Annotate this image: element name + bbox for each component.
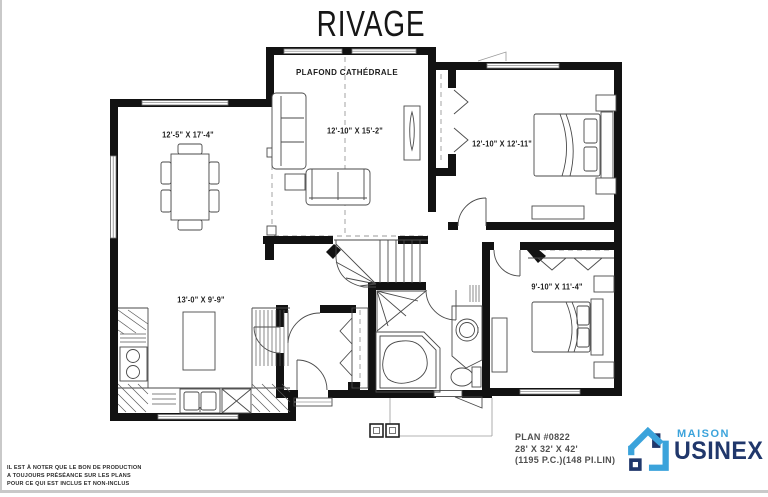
sofa-icon (272, 93, 306, 169)
bed-icon (534, 112, 613, 178)
side-table-icon (285, 174, 305, 190)
bathroom-fittings (376, 285, 482, 392)
bifold-door-icon (340, 350, 352, 376)
loveseat-icon (306, 169, 370, 205)
plan-dimensions: 28' X 32' X 42' (515, 444, 615, 456)
bifold-door-icon (538, 258, 566, 270)
room-label-bedroom-2: 9'-10" X 11'-4" (531, 283, 582, 292)
dishwasher-icon (222, 389, 251, 413)
plan-area: (1195 P.C.)(148 PI.LIN) (515, 455, 615, 467)
entry-door-leaf (455, 397, 482, 408)
bedroom2-furniture (492, 258, 614, 378)
room-label-living: 12'-10" X 15'-2" (327, 127, 383, 136)
nightstand-icon (596, 95, 616, 111)
living-furniture (272, 93, 420, 205)
toilet-icon (451, 367, 481, 387)
kitchen-island (183, 312, 215, 370)
porch-post-icon (370, 424, 383, 437)
disclaimer-line: IL EST À NOTER QUE LE BON DE PRODUCTION (7, 464, 142, 472)
disclaimer-line: POUR CE QUI EST INCLUS ET NON-INCLUS (7, 480, 142, 488)
fireplace-icon (404, 106, 420, 160)
stairs (334, 240, 428, 287)
plan-info: PLAN #0822 28' X 32' X 42' (1195 P.C.)(1… (515, 432, 615, 467)
logo-word-usinex: USINEX (674, 437, 763, 466)
dresser-icon (492, 318, 507, 372)
room-label-kitchen: 13'-0" X 9'-9" (177, 296, 224, 305)
disclaimer-line: A TOUJOURS PRÉSÉANCE SUR LES PLANS (7, 472, 142, 480)
room-label-bedroom-1: 12'-10" X 12'-11" (472, 140, 532, 149)
plan-number: PLAN #0822 (515, 432, 615, 444)
bedroom1-furniture (454, 90, 616, 219)
corner-shower-icon (377, 291, 426, 331)
logo-house-icon (627, 426, 673, 474)
disclaimer-note: IL EST À NOTER QUE LE BON DE PRODUCTION … (7, 464, 142, 488)
kitchen-sink-icon (180, 389, 220, 413)
maison-usinex-logo: MAISON USINEX (627, 426, 763, 476)
nightstand-icon (596, 178, 616, 194)
dresser-icon (532, 206, 584, 219)
roof-line (478, 52, 506, 61)
ceiling-note: PLAFOND CATHÉDRALE (296, 67, 398, 77)
bifold-door-icon (454, 90, 468, 114)
floor-plan-page: RIVAGE (0, 0, 768, 497)
room-label-dining: 12'-5" X 17'-4" (162, 131, 214, 140)
bifold-door-icon (454, 128, 468, 152)
nightstand-icon (594, 362, 614, 378)
vanity-sink-icon (452, 306, 482, 368)
kitchen-fittings (118, 308, 290, 413)
porch-post-icon (386, 424, 399, 437)
bed-icon (532, 299, 603, 355)
nightstand-icon (594, 276, 614, 292)
bifold-door-icon (574, 258, 602, 270)
bifold-door-icon (340, 318, 352, 344)
dining-table-icon (161, 144, 219, 230)
bathtub-icon (376, 332, 440, 392)
